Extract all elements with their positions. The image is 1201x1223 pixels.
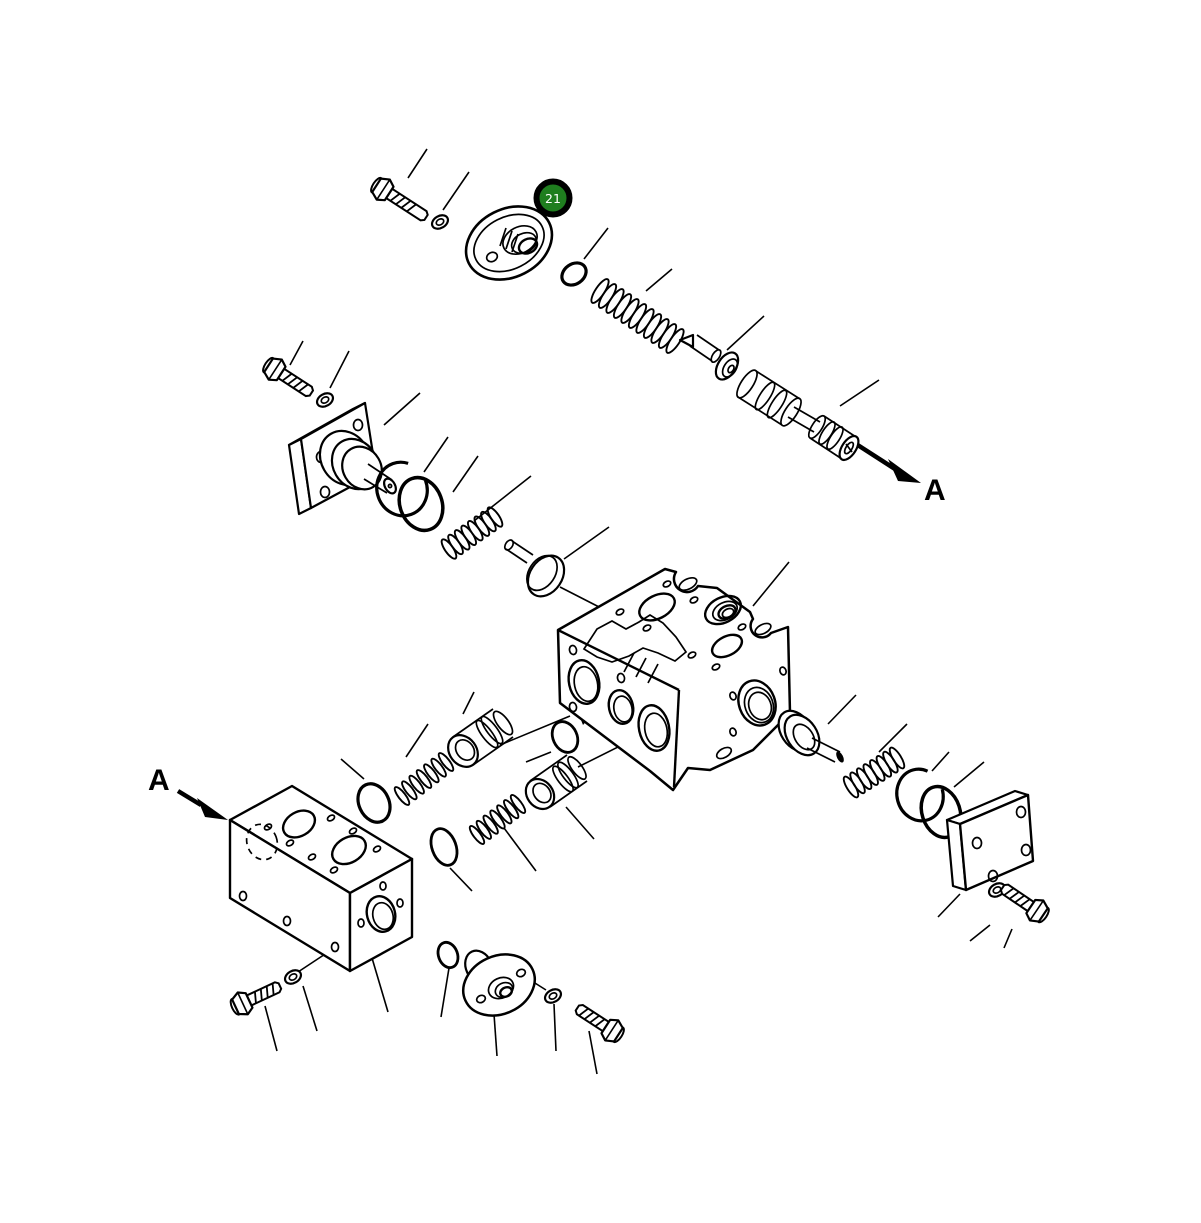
end-manifold-block bbox=[230, 786, 412, 971]
section-label-a-lower: A bbox=[148, 764, 170, 797]
hex-bolt-top bbox=[367, 173, 432, 227]
badge-number: 21 bbox=[545, 191, 561, 206]
section-arrow-a-lower: A bbox=[148, 764, 228, 820]
plunger bbox=[503, 538, 572, 603]
flanged-pilot-pin bbox=[771, 704, 845, 763]
coil-spring-plug-b bbox=[468, 793, 528, 846]
spring-seat-plate bbox=[289, 403, 398, 514]
washer-top bbox=[430, 213, 451, 232]
coil-spring-midleft bbox=[439, 505, 505, 560]
snap-ring-right bbox=[891, 764, 949, 826]
o-ring-bottom bbox=[435, 940, 462, 971]
section-label-a-upper: A bbox=[924, 474, 946, 507]
o-ring-plug-c bbox=[426, 825, 462, 869]
control-spool bbox=[733, 367, 862, 463]
o-ring-plug-a bbox=[352, 779, 396, 828]
hex-bolt-bottom-left bbox=[227, 975, 285, 1019]
o-ring-top bbox=[558, 258, 591, 289]
hex-bolt-bottom-right bbox=[571, 998, 628, 1047]
callout-badge-21[interactable]: 21 bbox=[537, 182, 570, 215]
oval-plug-cover bbox=[453, 943, 545, 1027]
check-valve-plug-a bbox=[442, 709, 516, 773]
hex-bolt-midleft bbox=[259, 353, 318, 403]
coil-spring-top bbox=[588, 277, 686, 355]
coil-spring-plug-a bbox=[393, 751, 456, 807]
section-arrow-a-upper: A bbox=[853, 442, 946, 507]
exploded-parts-diagram: A A bbox=[0, 0, 1201, 1223]
check-valve-poppet bbox=[680, 335, 743, 383]
o-ring-midleft bbox=[392, 471, 450, 536]
check-valve-plug-b bbox=[520, 754, 589, 814]
washer-midleft bbox=[315, 391, 336, 410]
hex-bolt-right bbox=[996, 878, 1053, 927]
